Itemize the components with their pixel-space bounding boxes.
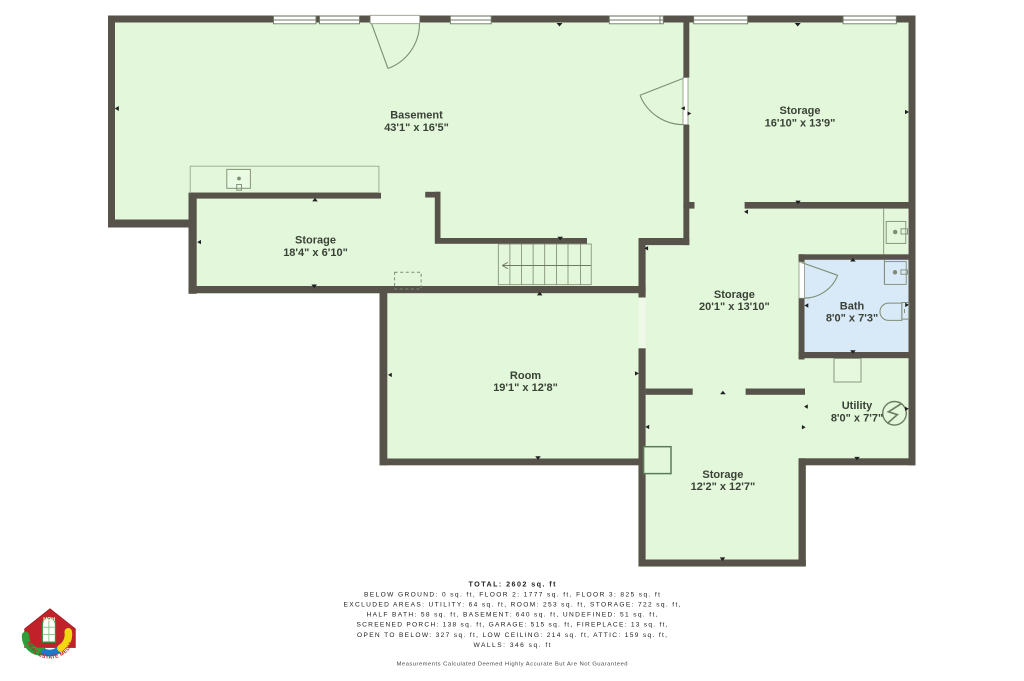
svg-text:Storage: Storage [714, 289, 755, 301]
svg-text:18'4" x 6'10": 18'4" x 6'10" [283, 247, 348, 259]
svg-text:BELOW GROUND: 0 sq. ft, FLOOR: BELOW GROUND: 0 sq. ft, FLOOR 2: 1777 sq… [364, 591, 660, 598]
svg-text:20'1" x 13'10": 20'1" x 13'10" [699, 301, 770, 313]
svg-text:HALF BATH: 58 sq. ft, BASEMENT: HALF BATH: 58 sq. ft, BASEMENT: 640 sq. … [367, 612, 658, 619]
svg-text:Room: Room [510, 370, 541, 382]
svg-text:8'0" x 7'7": 8'0" x 7'7" [831, 412, 883, 424]
svg-text:SCREENED PORCH: 138 sq. ft, GA: SCREENED PORCH: 138 sq. ft, GARAGE: 515 … [357, 622, 668, 629]
svg-text:Storage: Storage [295, 235, 336, 247]
svg-text:Basement: Basement [390, 110, 443, 122]
svg-text:TOTAL: 2602 sq. ft: TOTAL: 2602 sq. ft [469, 579, 557, 588]
svg-text:Bath: Bath [840, 300, 865, 312]
svg-text:12'2" x 12'7": 12'2" x 12'7" [691, 481, 756, 493]
svg-text:HOH: HOH [43, 617, 55, 623]
svg-text:Storage: Storage [780, 105, 821, 117]
svg-text:WALLS: 346 sq. ft: WALLS: 346 sq. ft [474, 642, 551, 649]
svg-text:Measurements Calculated Deemed: Measurements Calculated Deemed Highly Ac… [397, 662, 628, 668]
svg-text:8'0" x 7'3": 8'0" x 7'3" [826, 313, 878, 325]
svg-text:43'1" x 16'5": 43'1" x 16'5" [384, 122, 449, 134]
svg-text:Utility: Utility [842, 400, 873, 412]
svg-text:EXCLUDED AREAS: UTILITY: 64 sq: EXCLUDED AREAS: UTILITY: 64 sq. ft, ROOM… [343, 602, 680, 609]
svg-text:19'1" x 12'8": 19'1" x 12'8" [493, 382, 558, 394]
svg-text:Storage: Storage [702, 469, 743, 481]
svg-text:16'10" x 13'9": 16'10" x 13'9" [765, 117, 836, 129]
